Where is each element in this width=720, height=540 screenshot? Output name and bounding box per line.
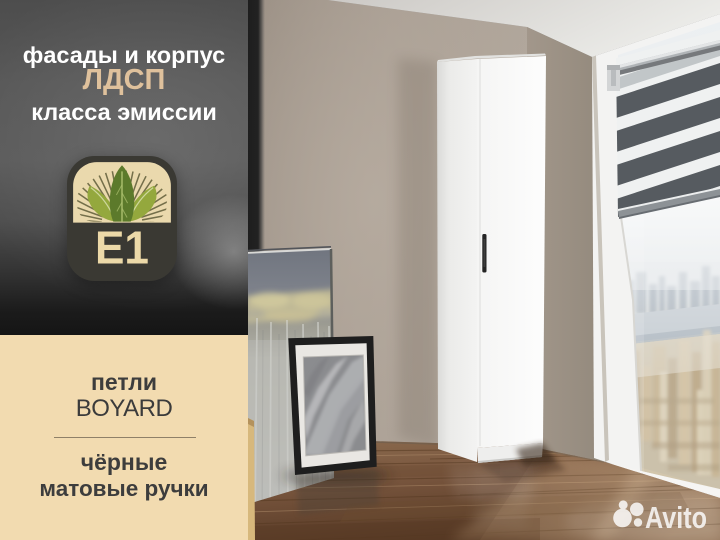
svg-text:Avito: Avito bbox=[645, 500, 707, 535]
svg-text:E1: E1 bbox=[95, 221, 149, 273]
